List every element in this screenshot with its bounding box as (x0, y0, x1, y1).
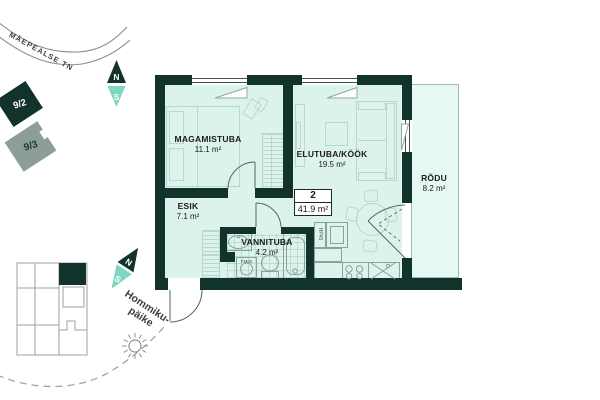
apartment-summary-box: 2 41.9 m² (294, 189, 332, 216)
compass-south-label: S (114, 92, 120, 102)
room-label-bedroom: MAGAMISTUBA 11.1 m² (150, 134, 266, 155)
room-label-hall: ESIK 7.1 m² (160, 201, 216, 222)
compass-south-label: S (113, 273, 123, 285)
sofa-armrest (358, 172, 386, 181)
dining-chair (362, 239, 377, 252)
room-name: RÕDU (410, 173, 458, 184)
room-area: 19.5 m² (272, 160, 392, 170)
sun-path-arc (0, 327, 164, 387)
sun-icon (122, 333, 148, 359)
floor-plan-page: N S N S MÄEPEALSE TN 9/2 9/3 Hommiku- pä… (0, 0, 600, 400)
wall (283, 85, 293, 198)
room-name: MAGAMISTUBA (150, 134, 266, 145)
kitchen-counter (314, 262, 400, 279)
wall (402, 258, 412, 278)
wall (155, 75, 165, 290)
room-name: ELUTUBA/KÖÖK (272, 149, 392, 160)
dining-chair (345, 206, 359, 222)
plot-9-3: 9/3 (5, 121, 57, 172)
wall (220, 227, 256, 234)
hall-wardrobe-divider (202, 254, 220, 255)
room-label-living: ELUTUBA/KÖÖK 19.5 m² (272, 149, 392, 170)
compass-north-label: N (124, 256, 135, 268)
washer-label: PM65 (236, 259, 257, 264)
wall (200, 278, 462, 290)
room-area: 4.2 m² (230, 248, 304, 258)
window-glazing (405, 120, 410, 152)
wall (155, 278, 168, 290)
window-glazing (302, 78, 357, 83)
tv (296, 122, 301, 149)
dining-table (356, 203, 389, 236)
kitchen-cabinet (314, 248, 342, 262)
window-glazing (192, 78, 247, 83)
room-name: VANNITUBA (230, 237, 304, 248)
wall (247, 75, 302, 85)
sofa-cushion-split (358, 140, 386, 141)
plot-9-2-label: 9/2 (12, 97, 28, 112)
plot-9-2: 9/2 (0, 81, 43, 127)
wall (165, 188, 228, 198)
wall (402, 75, 412, 120)
counter-divider (342, 262, 343, 279)
fridge-inner (330, 226, 344, 244)
wall (255, 188, 293, 198)
apartment-number: 2 (295, 190, 331, 203)
counter-divider (368, 262, 369, 279)
plot-9-3-label: 9/3 (22, 139, 39, 154)
room-area: 7.1 m² (160, 212, 216, 222)
plot-notch (39, 129, 49, 140)
room-name: ESIK (160, 201, 216, 212)
coffee-table (325, 122, 348, 146)
sofa-armrest (358, 101, 386, 110)
wall (306, 227, 314, 278)
dining-chair (384, 207, 398, 223)
room-area: 11.1 m² (150, 145, 266, 155)
apartment-total-area: 41.9 m² (295, 203, 331, 215)
duct-label: HP45 (317, 222, 323, 246)
room-area: 8.2 m² (410, 184, 458, 194)
room-label-balcony: RÕDU 8.2 m² (410, 173, 458, 194)
building-footprint-minimap (17, 263, 87, 355)
compass-north-label: N (113, 72, 119, 82)
dining-chair (363, 189, 378, 202)
room-label-bath: VANNITUBA 4.2 m² (230, 237, 304, 258)
morning-sun-label: Hommiku- päike (111, 285, 176, 339)
highlighted-unit (59, 263, 86, 285)
